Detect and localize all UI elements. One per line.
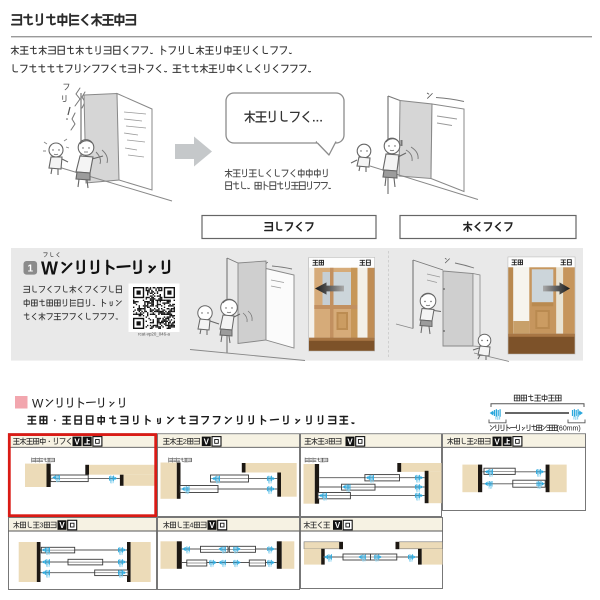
svg-text:2: 2	[473, 437, 477, 446]
svg-text:V: V	[347, 437, 353, 446]
svg-text:V: V	[59, 521, 65, 530]
svg-text:V: V	[74, 437, 80, 446]
svg-text:V: V	[204, 437, 210, 446]
svg-text:(60mm): (60mm)	[557, 425, 581, 432]
svg-text:2: 2	[183, 437, 187, 446]
svg-text:1: 1	[28, 264, 34, 275]
svg-text:3: 3	[39, 521, 43, 530]
svg-text:V: V	[335, 521, 341, 530]
svg-text:4: 4	[189, 521, 193, 530]
svg-text:V: V	[494, 437, 500, 446]
svg-text:3: 3	[324, 437, 328, 446]
svg-text:W: W	[41, 259, 58, 279]
svg-text:W: W	[32, 397, 44, 411]
svg-text:V: V	[209, 521, 215, 530]
svg-text:rcat-vp20_046-a: rcat-vp20_046-a	[138, 332, 171, 337]
